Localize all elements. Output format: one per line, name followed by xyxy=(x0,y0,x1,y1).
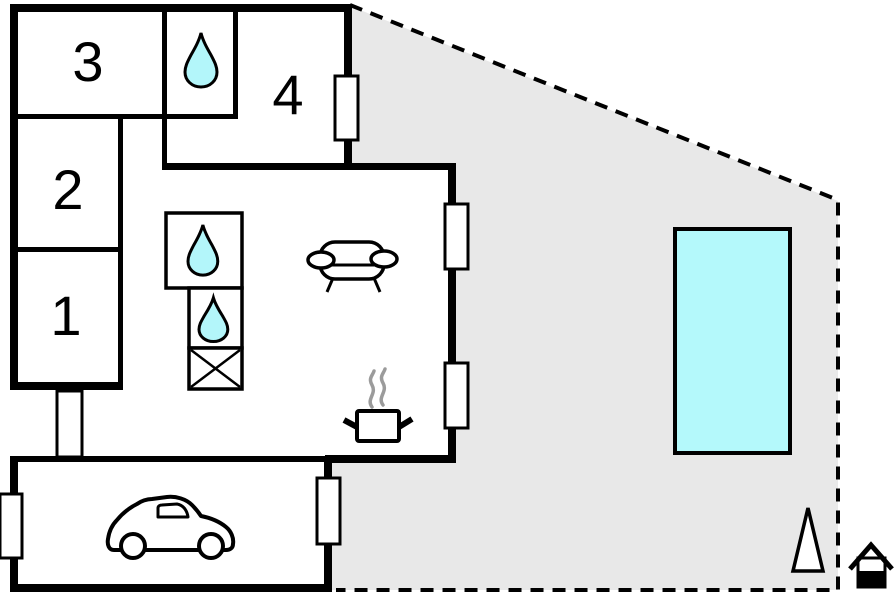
water-drop-icon-top xyxy=(185,33,217,87)
steam-line-1 xyxy=(370,371,374,407)
room-label-1: 1 xyxy=(50,288,81,344)
sofa-leg-right xyxy=(374,278,380,292)
car-window xyxy=(158,504,188,517)
wall-droproom-right xyxy=(233,4,238,118)
door-house-garage xyxy=(57,391,82,457)
house-marker-base xyxy=(857,571,886,587)
steam-line-2 xyxy=(381,369,385,405)
room-label-3: 3 xyxy=(72,34,103,90)
wall-living-bottom xyxy=(325,455,456,463)
wall-living-top xyxy=(162,163,456,170)
floor-plan: 3 2 1 4 xyxy=(0,0,896,597)
car-wheel-front xyxy=(199,534,223,558)
window-room4-east xyxy=(335,76,358,140)
car-wheel-rear xyxy=(121,534,145,558)
car-icon xyxy=(108,497,233,558)
window-garage-east xyxy=(317,478,340,544)
floor-plan-canvas xyxy=(0,0,896,597)
sofa-armrest-left xyxy=(308,252,334,268)
cooking-pot-icon xyxy=(344,369,412,441)
sofa-icon xyxy=(308,242,397,292)
wall-droproom-left xyxy=(162,4,167,170)
wall-room3-bottom xyxy=(10,114,238,119)
wall-left xyxy=(10,4,18,390)
sofa-armrest-right xyxy=(371,251,397,267)
wall-room1-room2-divider xyxy=(10,247,122,252)
wall-top xyxy=(10,4,352,12)
wall-room1-bottom xyxy=(10,382,123,390)
room-label-2: 2 xyxy=(52,162,83,218)
window-living-east-upper xyxy=(445,204,468,269)
window-living-east-lower xyxy=(445,363,468,428)
pot-body xyxy=(357,411,399,441)
wall-garage-bottom xyxy=(10,584,332,592)
house-marker-icon xyxy=(850,545,892,587)
room-label-4: 4 xyxy=(272,67,303,123)
swimming-pool xyxy=(675,229,790,453)
window-garage-west xyxy=(0,494,22,558)
